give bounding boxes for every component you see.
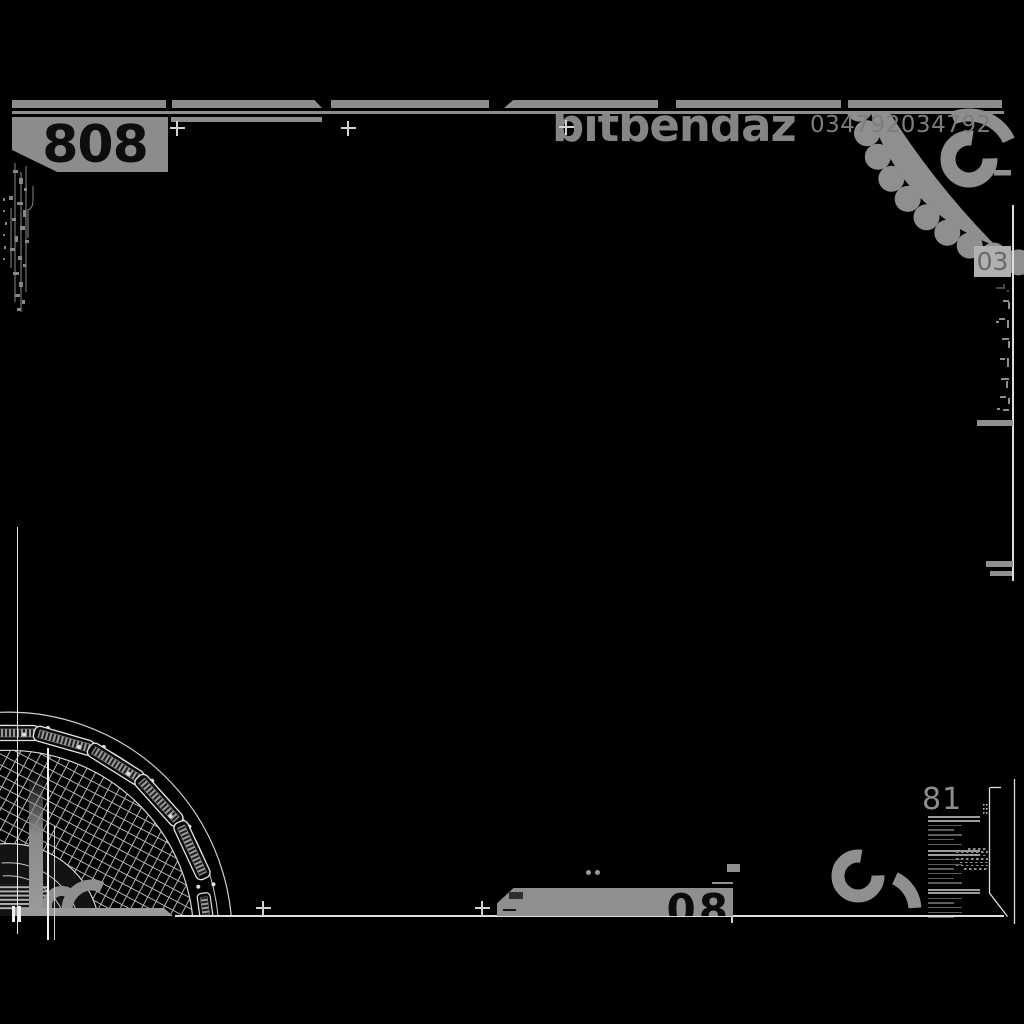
- dot-marker: [586, 870, 591, 875]
- crosshair-marker-icon: [475, 901, 490, 916]
- right-tick-bar: [986, 561, 1013, 567]
- dot-marker: [595, 870, 600, 875]
- crosshair-marker-icon: [170, 121, 185, 136]
- vertical-guide-line: [17, 527, 18, 934]
- glitch-column-right: [996, 300, 1010, 411]
- glitch-blocks-left: [3, 170, 29, 311]
- right-tick-bar: [990, 571, 1012, 576]
- top-bar-segment: [848, 100, 1002, 108]
- brand-text: bitbendaz: [552, 114, 796, 148]
- bottom-bar: [13, 908, 173, 916]
- small-line: [712, 882, 733, 884]
- tab-dash: [503, 909, 516, 911]
- index-badge-text: 03: [977, 247, 1009, 276]
- top-bar-segment: [676, 100, 841, 108]
- top-bar-segment: [172, 100, 322, 108]
- glitch-dots: [983, 804, 988, 814]
- footer-number-tab: 08: [497, 888, 733, 916]
- tick-mark: [18, 906, 21, 922]
- footer-index-number: 81: [922, 782, 962, 817]
- crosshair-marker-icon: [559, 120, 574, 135]
- artwork-canvas: 808 bitbendaz 034792034792 03 81: [0, 0, 1024, 1024]
- right-edge-line: [1012, 205, 1014, 581]
- crosshair-marker-icon: [341, 121, 356, 136]
- glitch-column-left: [11, 163, 33, 312]
- serial-number: 034792034792: [810, 112, 992, 138]
- right-tick-bar: [977, 420, 1013, 426]
- brand-wordmark: bitbendaz: [552, 114, 802, 148]
- micro-dash-block: [956, 848, 988, 872]
- micro-text-group: [928, 816, 984, 845]
- top-bar-segment: [331, 100, 489, 108]
- top-sub-bar: [171, 117, 322, 122]
- tick-mark: [12, 906, 15, 922]
- vertical-guide-line: [54, 826, 55, 940]
- vertical-guide-line: [47, 748, 49, 940]
- tab-number: 08: [667, 888, 731, 916]
- micro-text-group: [928, 889, 984, 918]
- vent-slot-small: [196, 883, 215, 928]
- tab-micro-label: [509, 892, 523, 899]
- glitch-glyph: [996, 284, 1009, 292]
- corner-bracket-lines: [990, 779, 1015, 924]
- crosshair-marker-icon: [256, 901, 271, 916]
- index-badge: 03: [974, 246, 1011, 277]
- brand-logo-icon: [838, 856, 915, 945]
- tab-tick: [731, 916, 733, 923]
- unit-number: 808: [32, 115, 148, 175]
- small-block: [727, 864, 740, 872]
- radial-grid-icon: [0, 712, 232, 1024]
- top-bar-segment: [504, 100, 658, 108]
- top-bar-segment: [12, 100, 166, 108]
